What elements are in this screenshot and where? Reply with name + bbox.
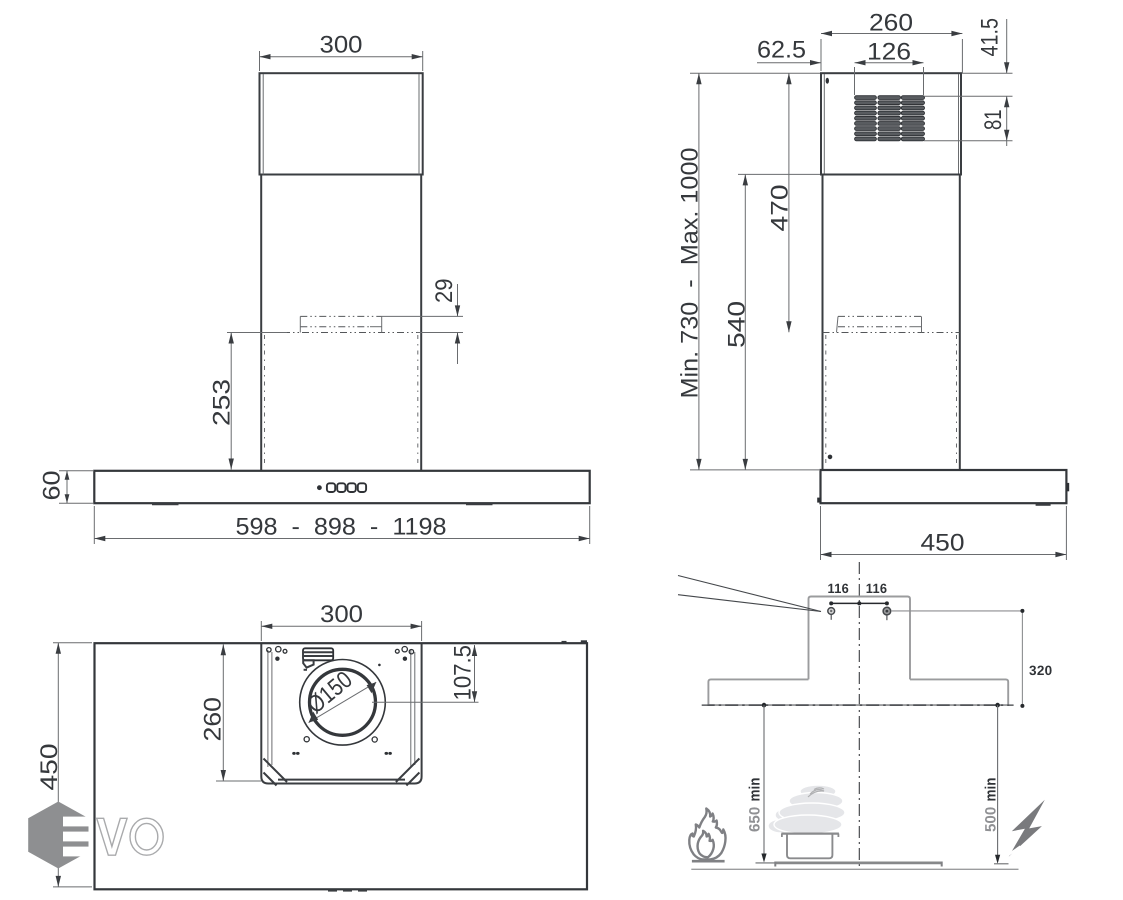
- svg-text:min: min: [983, 778, 1000, 802]
- svg-text:41.5: 41.5: [977, 18, 1004, 57]
- svg-text:29: 29: [431, 279, 458, 304]
- svg-text:min: min: [747, 778, 764, 802]
- svg-text:Min. 730 - Max. 1000: Min. 730 - Max. 1000: [677, 148, 704, 399]
- svg-text:81: 81: [980, 110, 1007, 131]
- svg-text:260: 260: [869, 10, 913, 37]
- svg-text:253: 253: [209, 379, 236, 426]
- svg-text:116: 116: [828, 581, 850, 596]
- svg-text:540: 540: [724, 301, 751, 348]
- svg-text:450: 450: [36, 744, 63, 791]
- svg-text:450: 450: [921, 530, 965, 557]
- svg-text:116: 116: [866, 581, 888, 596]
- svg-text:500: 500: [983, 807, 1000, 832]
- svg-text:126: 126: [867, 39, 911, 66]
- svg-text:650: 650: [747, 807, 764, 832]
- svg-text:60: 60: [39, 471, 66, 501]
- svg-text:320: 320: [1029, 663, 1053, 678]
- svg-text:260: 260: [200, 697, 227, 742]
- svg-text:300: 300: [320, 601, 363, 628]
- svg-text:598 - 898 - 1198: 598 - 898 - 1198: [236, 514, 447, 541]
- svg-text:470: 470: [767, 185, 794, 232]
- svg-text:300: 300: [320, 32, 363, 59]
- svg-text:107.5: 107.5: [450, 645, 477, 701]
- svg-text:62.5: 62.5: [757, 37, 806, 64]
